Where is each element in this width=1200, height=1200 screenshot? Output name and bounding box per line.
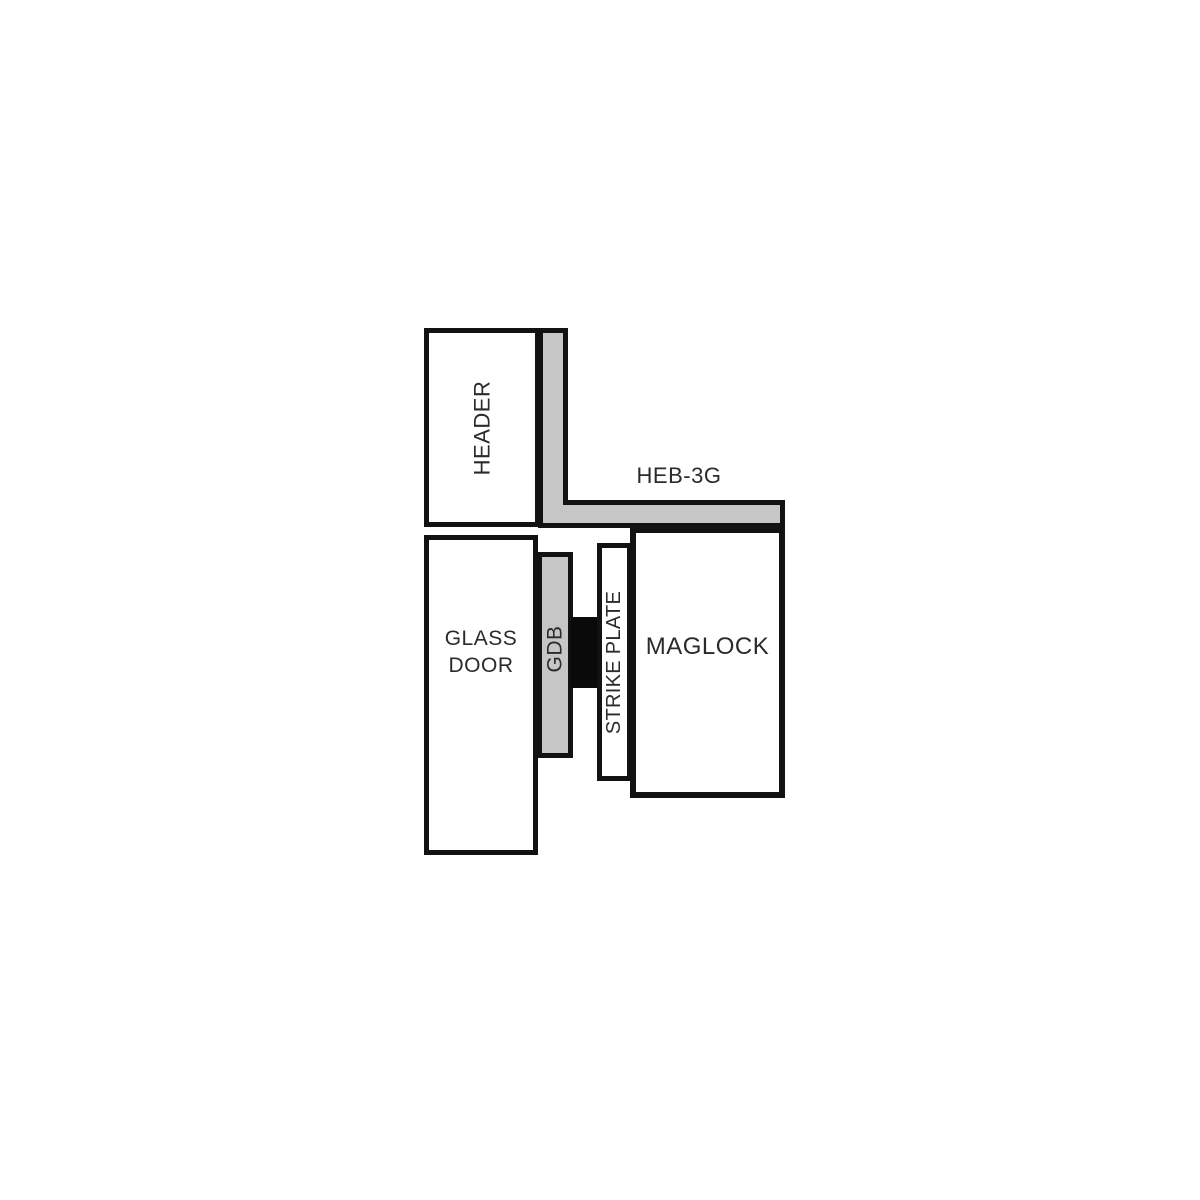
maglock-label: MAGLOCK [646,633,770,661]
glass-door-label: GLASS DOOR [429,625,533,679]
heb-3g-label: HEB-3G [604,463,754,489]
glass-door-box: GLASS DOOR [424,535,538,855]
maglock-box: MAGLOCK [630,527,785,798]
header-label: HEADER [469,380,495,475]
gdb-strip: GDB [537,552,573,758]
strike-plate-label: STRIKE PLATE [603,590,626,733]
header-box: HEADER [424,328,540,527]
maglock-installation-diagram: HEADER HEB-3G GLASS DOOR GDB STRIKE PLAT… [0,0,1200,1200]
bracket-l-shape [541,331,783,526]
strike-plate-strip: STRIKE PLATE [597,543,632,781]
gdb-spacer-block [571,617,599,688]
gdb-label: GDB [543,625,567,672]
